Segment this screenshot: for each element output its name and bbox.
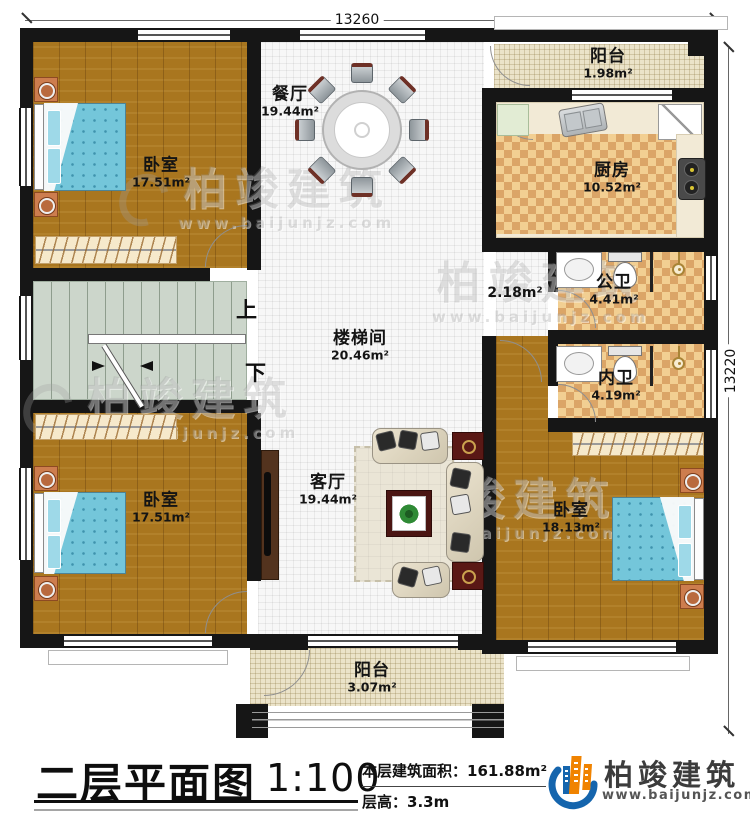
- right-dimension-label: 13220: [723, 345, 739, 398]
- company-logo-icon: [546, 750, 600, 812]
- dimension-tick: [21, 12, 32, 23]
- window-left-bedroom2: [19, 468, 33, 560]
- pillow: [678, 505, 692, 539]
- nightstand: [34, 192, 58, 217]
- floor-area-info: 本层建筑面积：161.88m²: [362, 760, 547, 781]
- corner-pillar: [688, 28, 718, 56]
- window-left-stairs: [19, 296, 33, 360]
- room-label-bedroom-top-left: 卧室 17.51m²: [132, 156, 190, 189]
- nightstand: [680, 584, 704, 609]
- stair-handrail: [88, 334, 246, 344]
- dining-chair: [351, 63, 373, 83]
- bath-divider-wall: [650, 346, 653, 386]
- room-label-balcony-bottom: 阳台 3.07m²: [347, 661, 396, 694]
- stairs-up-label: 上: [236, 294, 257, 324]
- top-dimension-label: 13260: [331, 12, 384, 28]
- window-sill: [48, 650, 228, 665]
- wall-bedroom1-east: [247, 42, 261, 270]
- floor-height-info: 层高：3.3m: [362, 791, 449, 812]
- dimension-tick: [723, 41, 734, 52]
- dimension-tick: [723, 725, 734, 736]
- wall-bath-mid: [548, 330, 718, 344]
- room-label-stair-hall: 楼梯间 20.46m²: [331, 329, 389, 362]
- balcony-top-sill: [494, 16, 728, 30]
- dining-table-center: [354, 122, 370, 138]
- room-label-private-bath: 内卫 4.19m²: [591, 369, 640, 402]
- kitchen-cabinet: [497, 104, 529, 136]
- title-underline-2: [34, 809, 358, 811]
- sofa-cushion: [399, 431, 418, 450]
- stair-arrow: [140, 361, 153, 371]
- window-bottom-bedroom3: [528, 640, 676, 654]
- sink-basin: [582, 108, 602, 129]
- room-label-balcony-top: 阳台 1.98m²: [583, 47, 632, 80]
- balcony-stub-left: [250, 634, 308, 650]
- pillow: [47, 148, 61, 184]
- wall-outer-right: [704, 42, 718, 654]
- pillow: [47, 535, 61, 569]
- window-left-bedroom1: [19, 108, 33, 186]
- pillow: [47, 499, 61, 533]
- plant-icon: [398, 503, 420, 525]
- nightstand: [34, 466, 58, 491]
- door-living-balcony: [308, 634, 458, 648]
- bed-headboard: [34, 104, 44, 190]
- toilet-icon: [608, 346, 642, 356]
- side-table: [452, 432, 484, 460]
- wardrobe: [572, 432, 704, 456]
- window-kitchen-balcony: [572, 88, 672, 102]
- wall-bedroom1-south: [20, 268, 210, 281]
- floor-area-label: 本层建筑面积：: [362, 762, 467, 780]
- window-bottom-bedroom2: [64, 634, 212, 648]
- window-sill: [516, 656, 690, 671]
- side-table: [452, 562, 484, 590]
- floor-plan-canvas: 13260 13220: [0, 0, 750, 825]
- bed-headboard: [34, 493, 44, 573]
- room-label-living: 客厅 19.44m²: [299, 473, 357, 506]
- window-top-bedroom1: [138, 28, 230, 42]
- room-label-bedroom-bottom-right: 卧室 18.13m²: [542, 501, 600, 534]
- shower-icon: [672, 357, 685, 370]
- toilet-icon: [608, 252, 642, 262]
- window-right-private-bath: [704, 350, 718, 418]
- sofa-cushion: [451, 533, 470, 552]
- nightstand: [680, 468, 704, 493]
- bed-headboard: [694, 498, 704, 580]
- wall-bedroom2-east: [247, 413, 261, 581]
- window-top-dining: [300, 28, 425, 42]
- stove-burner: [684, 180, 699, 195]
- nightstand: [34, 77, 58, 102]
- balcony-railing: [252, 712, 504, 728]
- room-label-kitchen: 厨房 10.52m²: [583, 161, 641, 194]
- stove-burner: [684, 162, 699, 177]
- stair-arrow: [92, 361, 105, 371]
- floor-area-value: 161.88m²: [467, 762, 547, 780]
- pillow: [47, 110, 61, 146]
- bath-divider-wall: [650, 252, 653, 292]
- dining-chair: [409, 119, 429, 141]
- room-label-public-bath: 公卫 4.41m²: [589, 273, 638, 306]
- window-right-public-bath: [704, 256, 718, 300]
- wall-kitchen-south: [482, 238, 718, 252]
- wardrobe: [35, 236, 177, 264]
- sofa-cushion: [421, 432, 439, 450]
- shower-icon: [672, 263, 685, 276]
- wardrobe: [35, 414, 177, 440]
- dining-chair: [351, 177, 373, 197]
- floor-height-label: 层高：: [362, 793, 407, 811]
- wall-kitchen-west: [482, 88, 496, 252]
- dining-chair: [295, 119, 315, 141]
- info-divider: [362, 786, 546, 787]
- tv-icon: [264, 472, 271, 556]
- stairs-down-label: 下: [245, 357, 266, 387]
- stove-icon: [678, 158, 706, 200]
- bath-sink-icon: [564, 352, 594, 375]
- nightstand: [34, 576, 58, 601]
- title-underline: [34, 800, 358, 803]
- floor-height-value: 3.3m: [407, 793, 449, 811]
- room-label-dining: 餐厅 19.44m²: [261, 85, 319, 118]
- pillow: [678, 543, 692, 577]
- area-label-hallway: 2.18m²: [487, 286, 542, 302]
- balcony-stub-right: [458, 634, 490, 650]
- sofa-cushion: [450, 468, 470, 488]
- wall-bedroom3-west: [482, 336, 496, 654]
- sink-basin: [564, 111, 584, 132]
- room-label-bedroom-bottom-left: 卧室 17.51m²: [132, 491, 190, 524]
- sofa-cushion: [423, 567, 442, 586]
- company-website: www.baijunjz.com: [602, 788, 750, 803]
- sofa-cushion: [451, 495, 471, 515]
